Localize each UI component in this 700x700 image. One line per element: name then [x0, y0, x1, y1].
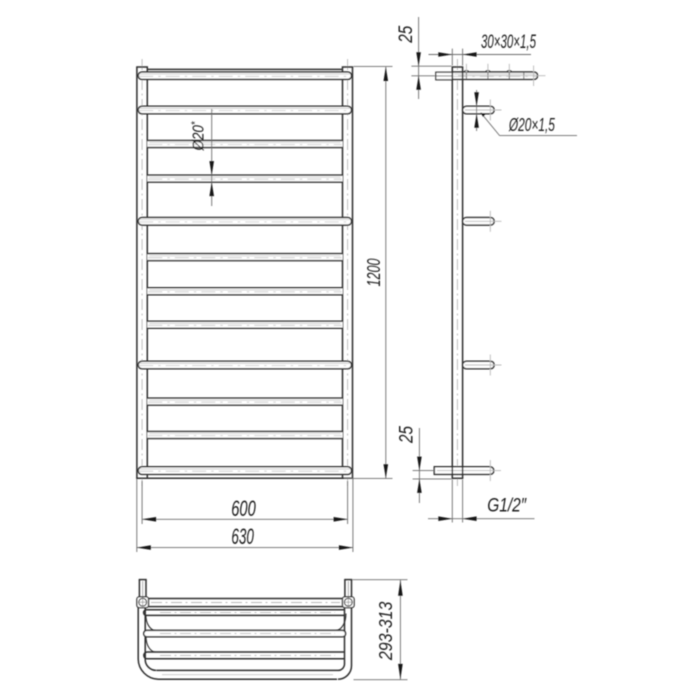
svg-text:30×30×1,5: 30×30×1,5 [481, 32, 536, 53]
svg-text:Ø20×1,5: Ø20×1,5 [508, 115, 555, 135]
svg-text:G1/2″: G1/2″ [487, 495, 527, 516]
svg-text:1200: 1200 [364, 259, 384, 287]
svg-text:25: 25 [396, 25, 417, 43]
svg-text:630: 630 [231, 524, 254, 549]
svg-text:600: 600 [231, 496, 256, 521]
svg-text:Ø20*: Ø20* [189, 121, 207, 151]
svg-text:293-313: 293-313 [376, 602, 396, 661]
svg-text:25: 25 [397, 426, 418, 444]
